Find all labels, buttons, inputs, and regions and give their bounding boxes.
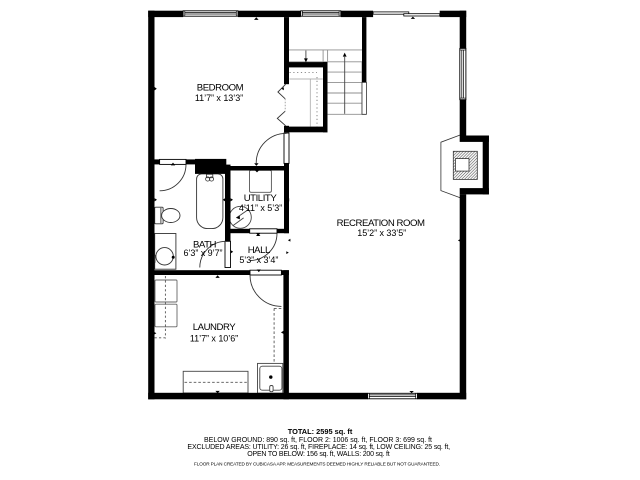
svg-text:TOTAL: 2595 sq. ft: TOTAL: 2595 sq. ft bbox=[288, 427, 353, 436]
svg-text:OPEN TO BELOW: 156 sq. ft, WAL: OPEN TO BELOW: 156 sq. ft, WALLS: 200 sq… bbox=[247, 451, 390, 458]
svg-text:LAUNDRY: LAUNDRY bbox=[193, 322, 237, 333]
svg-text:11’7” x 13’3”: 11’7” x 13’3” bbox=[195, 93, 243, 103]
svg-text:15’2” x 33’5”: 15’2” x 33’5” bbox=[357, 228, 406, 238]
svg-text:5’3” x 3’4”: 5’3” x 3’4” bbox=[239, 255, 278, 265]
svg-text:EXCLUDED AREAS: UTILITY: 26 sq: EXCLUDED AREAS: UTILITY: 26 sq. ft, FIRE… bbox=[187, 444, 450, 451]
svg-text:11’7” x 10’6”: 11’7” x 10’6” bbox=[190, 334, 238, 344]
svg-text:6’3” x 9’7”: 6’3” x 9’7” bbox=[184, 248, 223, 258]
svg-text:BEDROOM: BEDROOM bbox=[197, 83, 244, 94]
svg-text:BELOW GROUND: 890 sq. ft, FLOO: BELOW GROUND: 890 sq. ft, FLOOR 2: 1006 … bbox=[204, 437, 432, 444]
svg-text:4’11” x 5’3”: 4’11” x 5’3” bbox=[239, 203, 282, 213]
svg-text:FLOOR PLAN CREATED BY CUBICASA: FLOOR PLAN CREATED BY CUBICASA APP. MEAS… bbox=[194, 462, 440, 467]
